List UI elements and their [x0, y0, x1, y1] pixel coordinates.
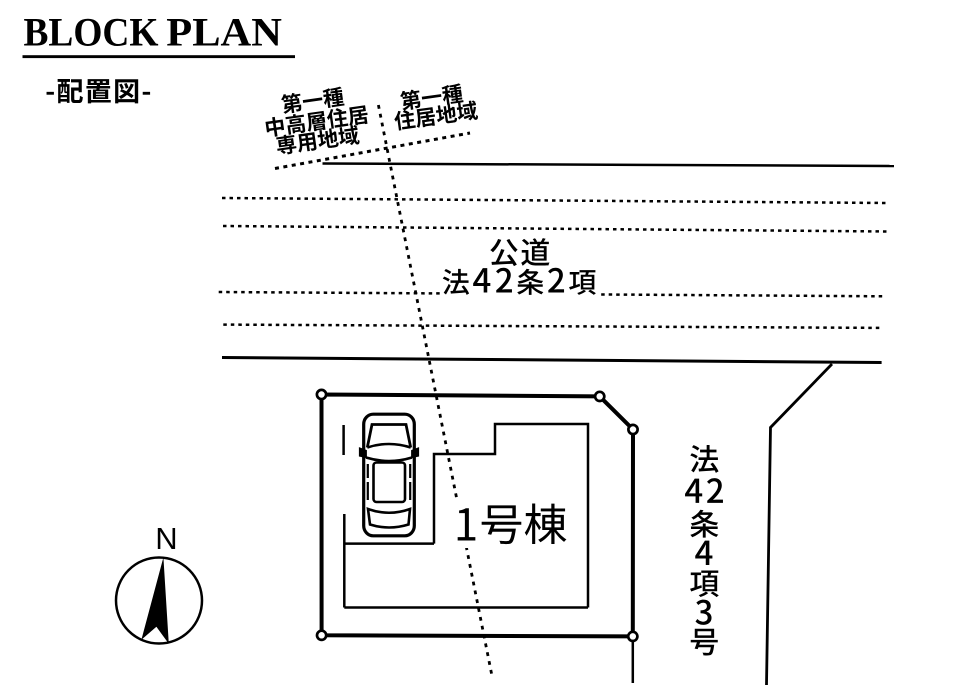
svg-text:BLOCK: BLOCK: [24, 10, 159, 55]
svg-text:N: N: [155, 521, 177, 556]
svg-text:PLAN: PLAN: [166, 10, 282, 55]
